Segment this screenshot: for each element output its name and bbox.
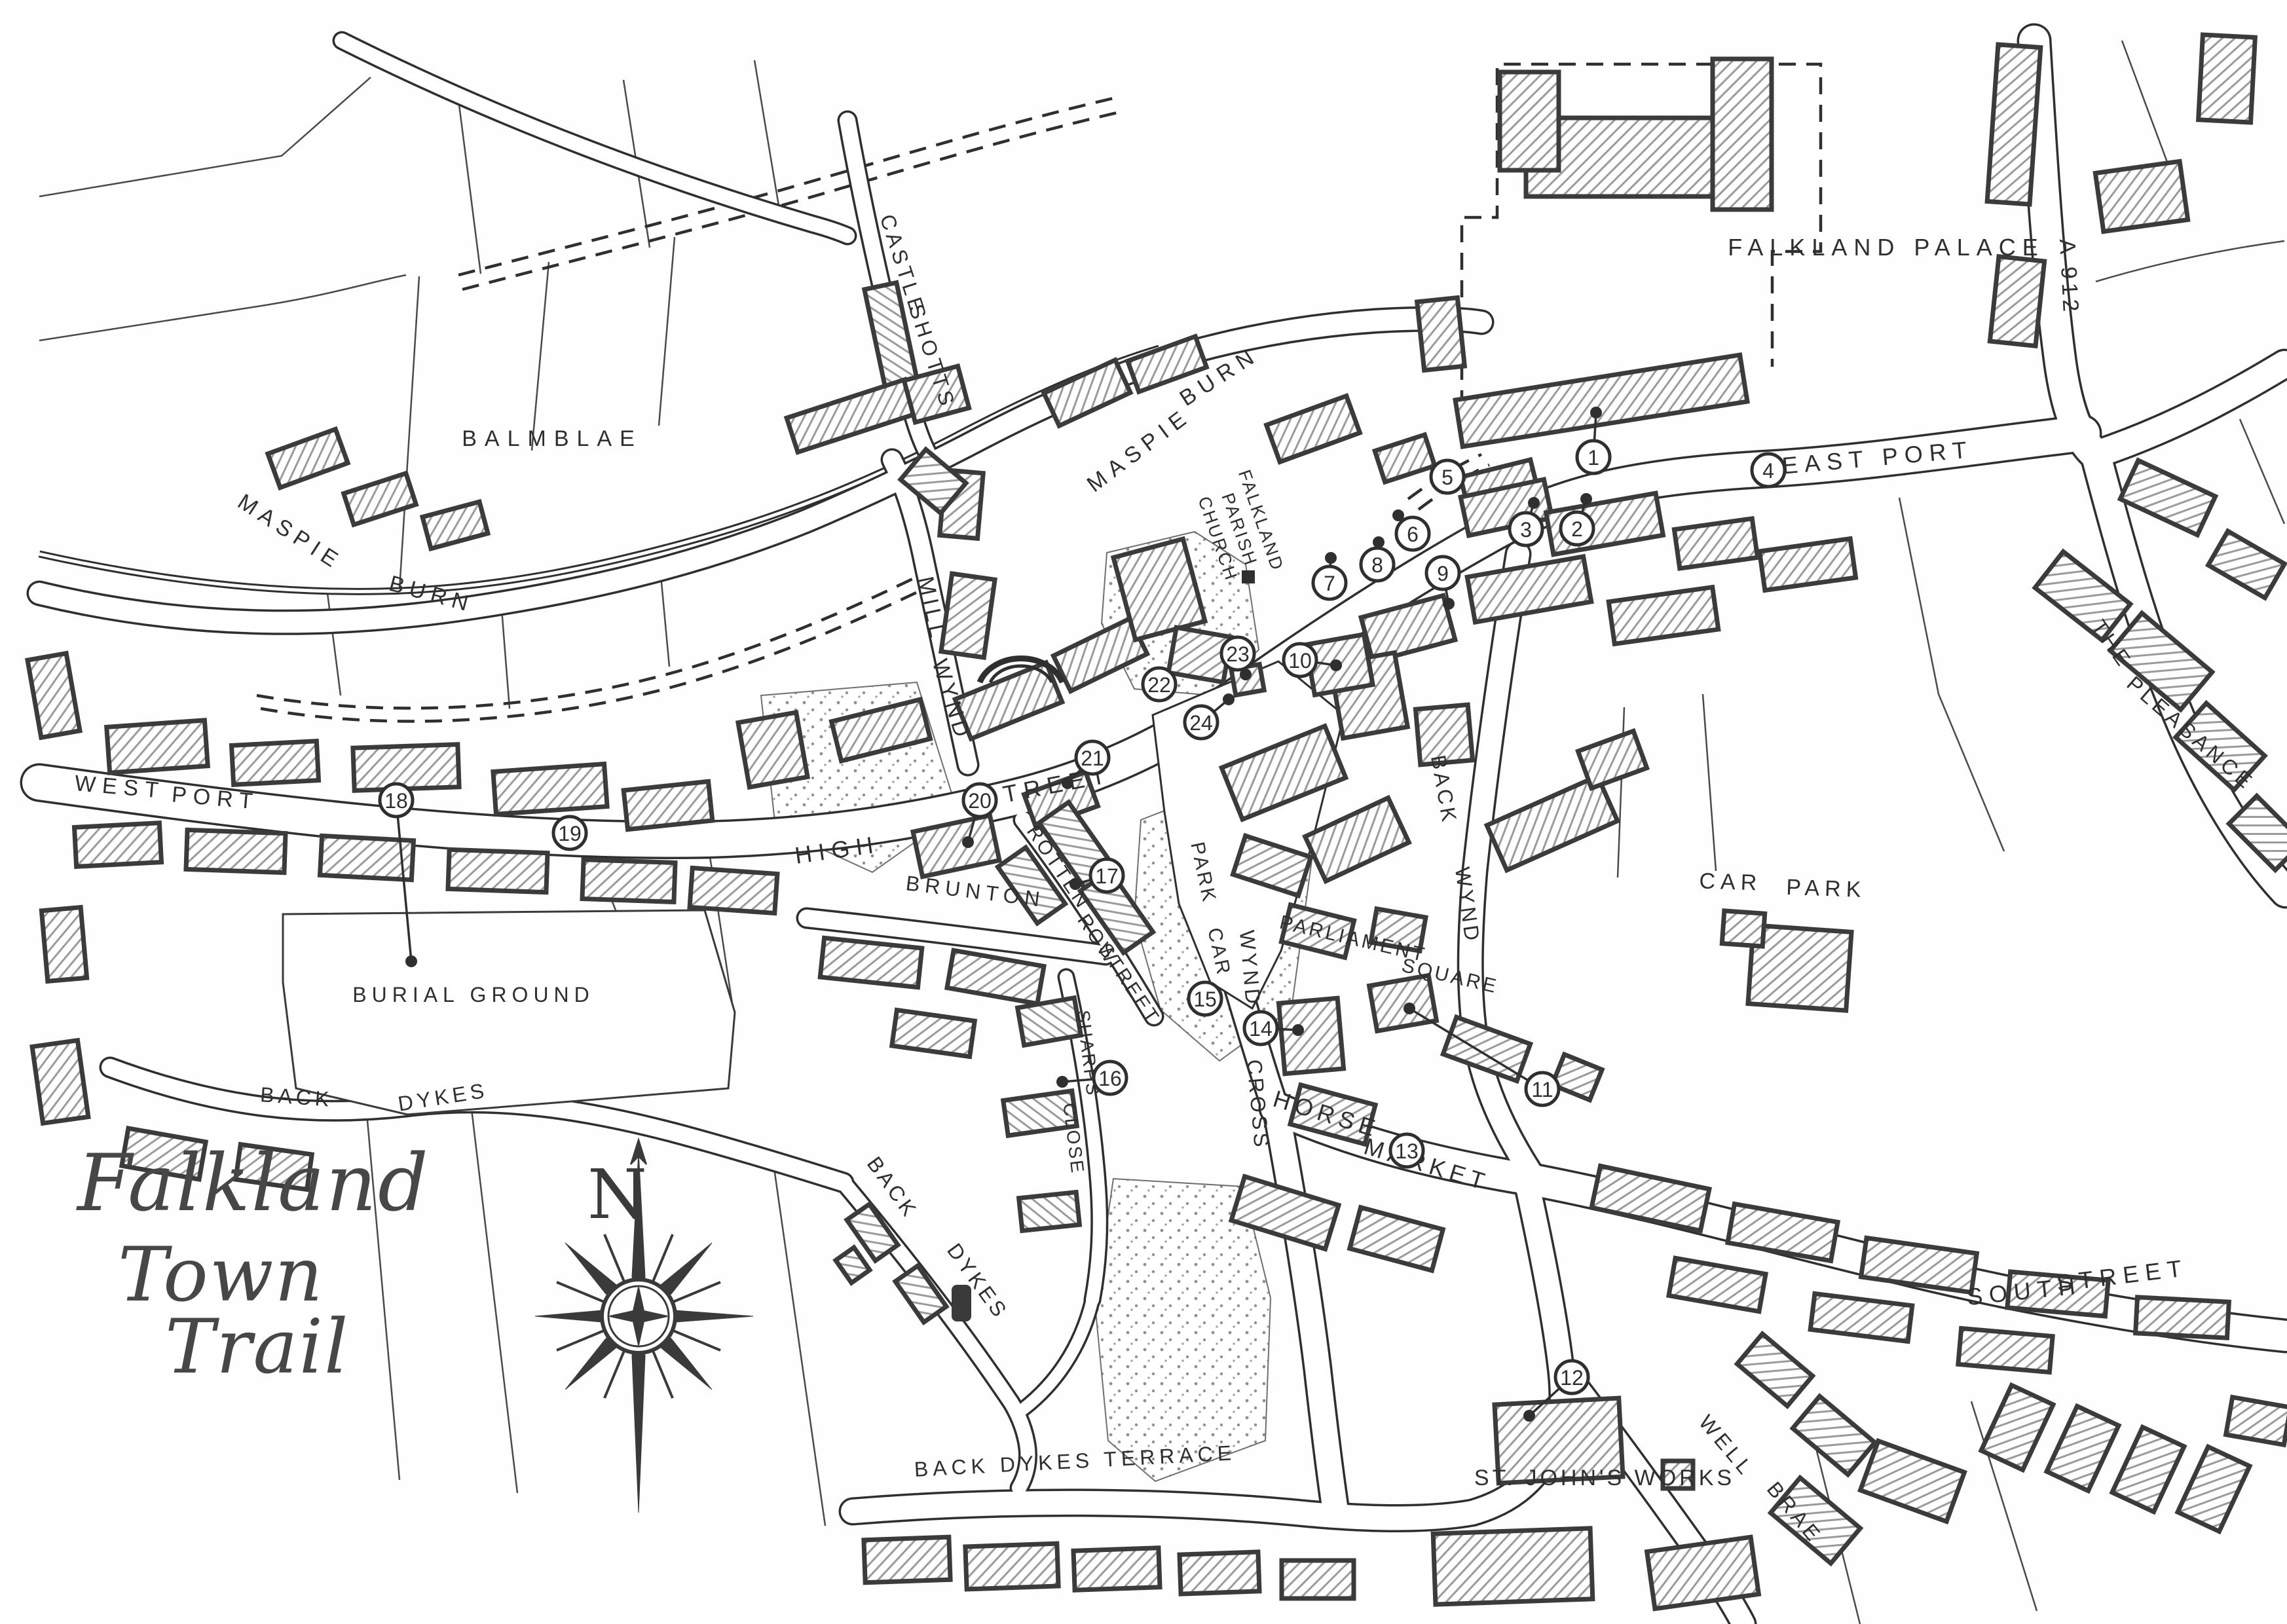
building-block <box>1369 976 1437 1031</box>
marker-22-number: 22 <box>1147 673 1171 697</box>
building-block <box>353 745 459 791</box>
marker-8: 8 <box>1361 536 1394 581</box>
marker-18-dot <box>405 955 417 967</box>
marker-24-dot <box>1223 693 1235 705</box>
marker-14-dot <box>1292 1024 1304 1036</box>
building-block <box>1282 1560 1354 1598</box>
building-block <box>965 1543 1058 1589</box>
building-block <box>2199 35 2256 122</box>
building-block <box>1073 1548 1160 1591</box>
building-block <box>1044 360 1130 426</box>
marker-13-number: 13 <box>1395 1139 1419 1163</box>
marker-3-number: 3 <box>1520 518 1532 542</box>
compass-north-label: N <box>587 1154 647 1234</box>
marker-5: 5 <box>1431 460 1464 493</box>
marker-19-number: 19 <box>558 822 582 845</box>
building-block <box>422 502 488 549</box>
building-block <box>1861 1238 1977 1292</box>
building-block <box>1987 45 2041 204</box>
map-title: Falkland Town Trail <box>76 1138 430 1390</box>
title-line-1: Falkland <box>76 1138 430 1229</box>
compass-rose: N <box>535 1139 753 1513</box>
building-block <box>232 741 319 785</box>
building-block <box>1793 1396 1874 1475</box>
label-car-park-east-1: CAR <box>1699 868 1762 895</box>
building-block <box>448 849 548 892</box>
building-block <box>864 1537 950 1582</box>
building-block <box>2095 161 2187 231</box>
building-block <box>1487 776 1618 870</box>
building-block <box>1728 1204 1838 1261</box>
maspie-burn-stream <box>39 348 1159 591</box>
marker-16-dot <box>1056 1076 1068 1088</box>
falkland-town-trail-map: CASTLESHOTTSMASPIEBURNMASPIEBURNBALMBLAE… <box>0 0 2287 1624</box>
building-block <box>1861 1441 1965 1521</box>
marker-17-dot <box>1069 878 1081 890</box>
building-block <box>941 574 995 657</box>
building-block <box>1417 298 1465 371</box>
building-block <box>836 1247 870 1283</box>
building-block <box>738 712 808 787</box>
marker-15-number: 15 <box>1193 987 1217 1011</box>
building-block <box>582 860 675 902</box>
marker-12-number: 12 <box>1560 1366 1584 1390</box>
building-block <box>32 1041 88 1124</box>
label-back-wynd-1: BACK <box>1426 753 1462 826</box>
marker-24-number: 24 <box>1189 711 1213 735</box>
building-block <box>2136 1297 2229 1338</box>
marker-3-dot <box>1528 497 1540 509</box>
label-south-street-2: STREET <box>2055 1254 2190 1297</box>
marker-21-dot <box>1062 777 1073 789</box>
marker-15: 15 <box>1189 982 1221 1015</box>
marker-20-number: 20 <box>968 789 992 813</box>
building-block <box>1267 396 1360 462</box>
building-block <box>1443 1017 1530 1080</box>
building-block <box>75 823 162 867</box>
building-block <box>1990 257 2044 346</box>
marker-10-dot <box>1330 659 1342 671</box>
marker-4: 4 <box>1752 454 1785 487</box>
marker-12-dot <box>1523 1410 1535 1422</box>
building-block <box>1467 557 1591 622</box>
marker-20-dot <box>962 836 974 848</box>
building-block <box>1981 1385 2053 1469</box>
marker-6-number: 6 <box>1407 523 1419 546</box>
building-block <box>895 1266 946 1322</box>
marker-8-number: 8 <box>1371 553 1383 577</box>
burial-ground-enclosure <box>283 910 735 1115</box>
building-block <box>892 1010 975 1056</box>
marker-23-number: 23 <box>1226 642 1250 666</box>
marker-2-dot <box>1580 493 1592 505</box>
building-block <box>107 720 208 773</box>
building-block <box>186 830 286 872</box>
building-block <box>268 429 348 487</box>
marker-7: 7 <box>1313 552 1346 599</box>
small-solid-building <box>952 1285 971 1321</box>
building-block <box>1958 1329 2053 1373</box>
marker-1-number: 1 <box>1588 446 1599 470</box>
building-block <box>1278 998 1343 1073</box>
marker-9-dot <box>1443 598 1455 610</box>
marker-16-number: 16 <box>1098 1067 1122 1090</box>
building-block <box>1180 1552 1259 1594</box>
title-line-3: Trail <box>165 1303 349 1390</box>
marker-5-number: 5 <box>1441 466 1453 489</box>
building-block <box>1608 587 1718 644</box>
building-block <box>2112 1427 2184 1511</box>
building-block <box>493 764 607 815</box>
marker-6: 6 <box>1392 509 1429 550</box>
building-block <box>2178 1447 2250 1531</box>
church-symbol <box>1242 570 1255 583</box>
building-block <box>2120 460 2215 535</box>
building-block <box>28 654 80 738</box>
marker-22: 22 <box>1143 668 1176 701</box>
marker-9-number: 9 <box>1437 562 1449 585</box>
building-block <box>1722 911 1764 946</box>
label-mill-wynd-1: MILL <box>913 574 951 643</box>
label-car-park-east-2: PARK <box>1786 875 1867 902</box>
building-block <box>1737 1334 1812 1406</box>
label-st-johns-works: ST. JOHN'S WORKS <box>1474 1466 1735 1490</box>
map-canvas: CASTLESHOTTSMASPIEBURNMASPIEBURNBALMBLAE… <box>0 0 2287 1624</box>
marker-17-number: 17 <box>1095 864 1119 888</box>
building-block <box>2226 1397 2287 1445</box>
building-block <box>1375 435 1435 482</box>
building-block <box>2047 1406 2119 1490</box>
building-block <box>690 868 777 913</box>
label-balmblae: BALMBLAE <box>462 426 642 451</box>
building-block <box>1433 1528 1593 1604</box>
building-block <box>1810 1294 1912 1342</box>
marker-4-number: 4 <box>1762 459 1774 483</box>
marker-7-dot <box>1325 552 1337 564</box>
building-block <box>1647 1537 1759 1608</box>
marker-8-dot <box>1373 536 1385 548</box>
building-block <box>1019 1192 1080 1231</box>
building-block <box>787 379 916 452</box>
marker-7-number: 7 <box>1324 572 1335 595</box>
building-block <box>1018 998 1081 1045</box>
building-block <box>1350 1208 1443 1270</box>
marker-13: 13 <box>1390 1134 1423 1167</box>
building-block <box>41 908 86 982</box>
building-block <box>1674 519 1757 568</box>
marker-14-number: 14 <box>1249 1017 1273 1041</box>
marker-1-dot <box>1590 407 1602 418</box>
building-block <box>1578 731 1646 788</box>
building-block <box>820 938 921 987</box>
marker-2-number: 2 <box>1571 517 1583 541</box>
building-block <box>1500 72 1559 170</box>
marker-10-number: 10 <box>1288 649 1312 673</box>
marker-21-number: 21 <box>1081 747 1104 770</box>
building-block <box>1455 355 1747 447</box>
building-block <box>1669 1258 1766 1311</box>
building-block <box>1760 539 1856 591</box>
building-block <box>1713 59 1772 210</box>
marker-18-number: 18 <box>384 789 408 813</box>
building-block <box>623 781 713 829</box>
marker-11-dot <box>1404 1003 1415 1014</box>
label-burial-ground: BURIAL GROUND <box>352 983 595 1006</box>
building-block <box>344 473 417 525</box>
marker-19: 19 <box>553 817 586 849</box>
marker-11-number: 11 <box>1531 1078 1553 1101</box>
building-block <box>1591 1166 1709 1231</box>
building-block <box>2208 531 2285 598</box>
label-maspie-upper-1: MASPIE <box>1083 403 1196 497</box>
label-back-dykes-terrace: BACK DYKES TERRACE <box>914 1441 1236 1481</box>
label-falkland-palace: FALKLAND PALACE <box>1728 234 2044 261</box>
label-a912: A 912 <box>2055 238 2083 316</box>
label-maspie-lower-1: MASPIE <box>233 489 347 575</box>
building-block <box>947 950 1044 1003</box>
